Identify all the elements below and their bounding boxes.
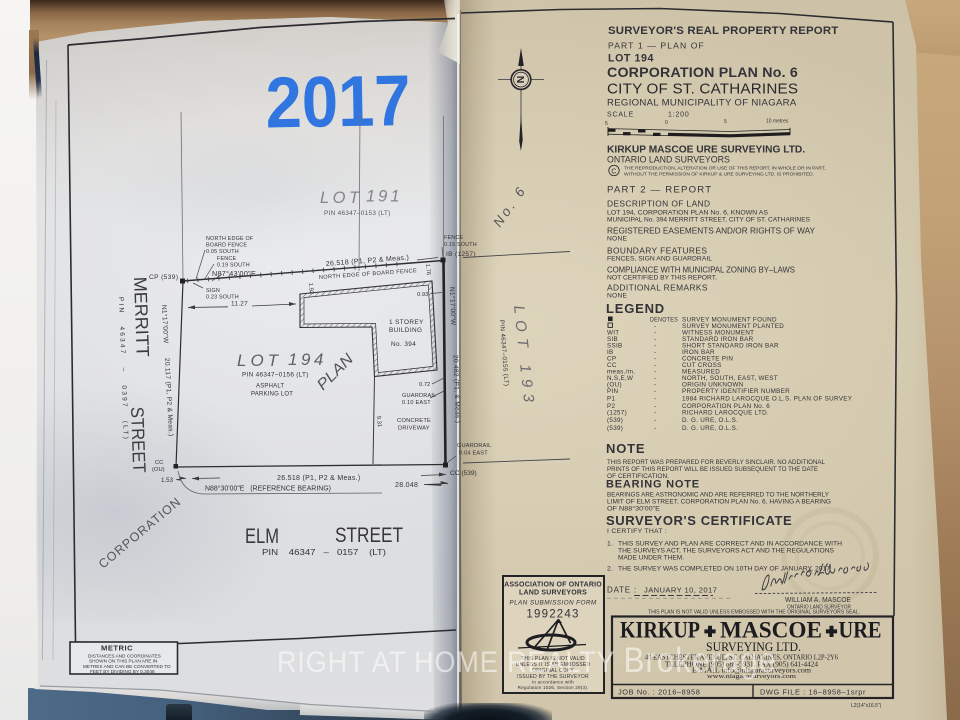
svg-text:SCALE: SCALE — [607, 112, 634, 119]
svg-text:20.482 (P1, & Meas.): 20.482 (P1, & Meas.) — [452, 355, 461, 424]
svg-text:REGISTERED EASEMENTS AND/OR RI: REGISTERED EASEMENTS AND/OR RIGHTS OF WA… — [607, 226, 815, 236]
svg-text:PRINTS OF THIS REPORT WILL BE: PRINTS OF THIS REPORT WILL BE ISSUED SUB… — [607, 466, 818, 473]
svg-text:PART 2 — REPORT: PART 2 — REPORT — [607, 185, 712, 196]
svg-text:WITHOUT THE PERMISSION OF: WITHOUT THE PERMISSION OF KIRKUP & URE S… — [624, 172, 814, 178]
svg-text:JOB No. : 2016–8958: JOB No. : 2016–8958 — [618, 688, 700, 697]
svg-text:N88°30'00"E (REFERENCE BEARI: N88°30'00"E (REFERENCE BEARING) — [205, 485, 331, 493]
svg-text:0.10 EAST: 0.10 EAST — [402, 400, 431, 406]
svg-text:CC (539): CC (539) — [450, 470, 477, 477]
svg-text:MADE UNDER THEM.: MADE UNDER THEM. — [618, 555, 684, 562]
svg-text:2017: 2017 — [265, 60, 411, 143]
svg-text:KIRKUP: KIRKUP — [620, 618, 700, 643]
svg-text:D. G. URE, O.L.S.: D. G. URE, O.L.S. — [682, 417, 738, 424]
svg-text:191: 191 — [366, 188, 403, 206]
svg-text:194: 194 — [288, 350, 327, 369]
svg-text:I CERTIFY THAT :: I CERTIFY THAT : — [607, 528, 667, 535]
svg-text:THIS PLAN IS NOT VALID UNLESS: THIS PLAN IS NOT VALID UNLESS EMBOSSED W… — [648, 610, 860, 616]
svg-text:LEGEND: LEGEND — [606, 301, 665, 316]
svg-text:SURVEYOR'S CERTIFICATE: SURVEYOR'S CERTIFICATE — [606, 513, 792, 528]
svg-text:LOT 193: LOT 193 — [510, 305, 537, 404]
svg-text:0.05 SOUTH: 0.05 SOUTH — [206, 249, 239, 255]
svg-text:BOUNDARY FEATURES: BOUNDARY FEATURES — [607, 246, 707, 256]
svg-text:28.048: 28.048 — [395, 482, 418, 489]
svg-text:(539): (539) — [607, 425, 623, 432]
svg-text:No. 6: No. 6 — [490, 182, 529, 229]
svg-text:PIN 46347–0156 (LT): PIN 46347–0156 (LT) — [242, 372, 309, 379]
svg-text:ELM: ELM — [245, 525, 279, 548]
svg-text:PIN 46347 – 0397 (LT): PIN 46347 – 0397 (LT) — [117, 297, 129, 439]
svg-text:0.72: 0.72 — [419, 382, 430, 388]
svg-text:PROPERTY IDENTIFIER NUMBER: PROPERTY IDENTIFIER NUMBER — [682, 388, 790, 395]
svg-text:THIS SURVEY AND PLAN ARE CORRE: THIS SURVEY AND PLAN ARE CORRECT AND IN … — [618, 541, 842, 548]
svg-text:0.19 SOUTH: 0.19 SOUTH — [217, 263, 250, 269]
svg-text:0.15 SOUTH: 0.15 SOUTH — [444, 242, 477, 248]
svg-text:COMPLIANCE WITH MUNICIPAL ZONI: COMPLIANCE WITH MUNICIPAL ZONING BY–LAWS — [607, 265, 795, 275]
svg-text:BOARD FENCE: BOARD FENCE — [206, 243, 247, 249]
svg-text:ASPHALT: ASPHALT — [256, 384, 284, 390]
svg-text:FENCE: FENCE — [217, 256, 236, 262]
svg-text:PLAN SUBMISSION FORM: PLAN SUBMISSION FORM — [509, 600, 596, 607]
svg-text:ADDITIONAL REMARKS: ADDITIONAL REMARKS — [607, 283, 708, 293]
svg-text:N1°17'00"W: N1°17'00"W — [448, 287, 457, 326]
svg-text:0.04 EAST: 0.04 EAST — [459, 451, 488, 457]
svg-text:1.53: 1.53 — [161, 477, 174, 484]
svg-text:MERRITT: MERRITT — [130, 276, 153, 357]
svg-text:SIGN: SIGN — [206, 288, 220, 294]
svg-text:N: N — [514, 76, 526, 84]
svg-text:OF N88°30'00"E: OF N88°30'00"E — [607, 505, 660, 513]
svg-text:URE: URE — [839, 618, 882, 643]
svg-text:THIS REPORT WAS PREPARED FOR B: THIS REPORT WAS PREPARED FOR BEVERLY SIN… — [607, 459, 825, 466]
svg-text:NOT CERTIFIED BY THIS REPORT.: NOT CERTIFIED BY THIS REPORT. — [607, 275, 717, 282]
svg-text:FEET BY DIVIDING BY 0.3048: FEET BY DIVIDING BY 0.3048 — [90, 669, 155, 674]
svg-text:10 metres: 10 metres — [766, 119, 789, 125]
svg-text:P1: P1 — [607, 396, 615, 403]
svg-text:1984 RICHARD LAROCQUE O.L.S: 1984 RICHARD LAROCQUE O.L.S. PLAN OF SUR… — [682, 396, 853, 403]
svg-text:C: C — [611, 168, 616, 175]
svg-text:11.27: 11.27 — [231, 301, 248, 308]
svg-text:REGIONAL MUNICIPALITY OF NI: REGIONAL MUNICIPALITY OF NIAGARA — [607, 98, 797, 109]
svg-text:BEARINGS ARE ASTRONOMIC AND AR: BEARINGS ARE ASTRONOMIC AND ARE REFERRED… — [607, 492, 829, 499]
svg-text:NONE: NONE — [607, 293, 628, 300]
svg-text:(OU): (OU) — [152, 467, 165, 473]
svg-text:20.117 (P1, P2 & Meas.): 20.117 (P1, P2 & Meas.) — [163, 358, 174, 437]
svg-text:THE SURVEYS ACT, THE SURVEYORS: THE SURVEYS ACT, THE SURVEYORS ACT AND T… — [618, 548, 834, 555]
svg-text:-: - — [654, 425, 656, 432]
svg-text:(539): (539) — [607, 417, 623, 424]
svg-text:BEARING NOTE: BEARING NOTE — [606, 479, 700, 491]
svg-text:CITY OF ST. CATHARINES: CITY OF ST. CATHARINES — [607, 81, 798, 98]
svg-text:DESCRIPTION OF LAND: DESCRIPTION OF LAND — [607, 199, 710, 209]
svg-text:PART 1 — PLAN OF: PART 1 — PLAN OF — [608, 41, 705, 51]
svg-text:N87°43'00"E: N87°43'00"E — [212, 269, 256, 278]
svg-text:PIN 46347–0155 (LT): PIN 46347–0155 (LT) — [498, 320, 510, 387]
svg-text:LOT 194: LOT 194 — [608, 53, 654, 65]
svg-text:1.92: 1.92 — [307, 283, 314, 295]
svg-text:DRIVEWAY: DRIVEWAY — [398, 426, 430, 432]
svg-text:0: 0 — [665, 120, 668, 126]
svg-text:ONTARIO LAND SURVEYORS: ONTARIO LAND SURVEYORS — [607, 155, 730, 165]
svg-text:CORPORATION PLAN No. 6: CORPORATION PLAN No. 6 — [607, 65, 798, 81]
svg-text:NORTH EDGE OF: NORTH EDGE OF — [206, 236, 254, 242]
svg-text:-: - — [654, 396, 656, 403]
svg-text:LIMIT OF ELM STREET, CORPORATI: LIMIT OF ELM STREET, CORPORATION PLAN No… — [607, 499, 831, 506]
svg-text:NORTH EDGE OF BOARD FENCE: NORTH EDGE OF BOARD FENCE — [319, 268, 418, 281]
svg-text:1:200: 1:200 — [668, 112, 690, 119]
svg-text:0.93: 0.93 — [417, 292, 428, 298]
svg-text:NOTE: NOTE — [606, 441, 645, 456]
svg-text:JANUARY 10, 2017: JANUARY 10, 2017 — [644, 586, 717, 595]
svg-text:1.: 1. — [607, 541, 613, 548]
svg-text:LOT: LOT — [320, 189, 363, 207]
svg-text:GUARDRAIL: GUARDRAIL — [457, 443, 491, 449]
svg-text:D. G. URE, O.L.S.: D. G. URE, O.L.S. — [682, 425, 738, 432]
svg-text:NONE: NONE — [607, 236, 628, 243]
svg-text:2.: 2. — [607, 566, 613, 573]
svg-text:CP (539): CP (539) — [149, 274, 178, 281]
svg-text:STREET: STREET — [127, 406, 149, 473]
svg-text:Regulation 1026, Section 29: Regulation 1026, Section 29(3). — [518, 685, 589, 690]
svg-text:MUNICIPAL No. 394 MERRITT STRE: MUNICIPAL No. 394 MERRITT STREET, CITY O… — [607, 217, 811, 224]
svg-text:(1257): (1257) — [607, 410, 627, 417]
svg-text:-: - — [654, 410, 656, 417]
svg-text:LAND SURVEYORS: LAND SURVEYORS — [519, 590, 587, 597]
svg-text:LOT 194, CORPORATION PLAN No.: LOT 194, CORPORATION PLAN No. 6, KNOWN A… — [607, 210, 769, 217]
svg-text:THE REPRODUCTION, ALTERATION: THE REPRODUCTION, ALTERATION OR USE OF T… — [624, 166, 826, 172]
svg-text:1 STOREY: 1 STOREY — [389, 319, 424, 326]
svg-text:9.31: 9.31 — [375, 416, 382, 428]
svg-text:26.518 (P1, P2 & Meas.): 26.518 (P1, P2 & Meas.) — [277, 475, 361, 482]
svg-text:CC: CC — [155, 460, 163, 466]
svg-text:1992243: 1992243 — [526, 609, 579, 621]
svg-text:CORPORATION: CORPORATION — [96, 495, 183, 571]
svg-text:FENCE: FENCE — [444, 235, 463, 241]
svg-text:FENCES, SIGN AND GUARDRAIL: FENCES, SIGN AND GUARDRAIL — [607, 256, 712, 263]
svg-text:METRIC: METRIC — [101, 644, 133, 653]
svg-text:PIN: PIN — [607, 388, 619, 395]
svg-text:DWG FILE : 16–8958–1srpr: DWG FILE : 16–8958–1srpr — [760, 688, 866, 697]
svg-text:PIN 46347 – 0157 (LT: PIN 46347 – 0157 (LT) — [262, 548, 386, 557]
svg-text:N1°17'00"W: N1°17'00"W — [160, 305, 170, 344]
svg-text:SURVEYOR'S REAL PROPERTY RE: SURVEYOR'S REAL PROPERTY REPORT — [608, 25, 838, 37]
svg-text:No. 394: No. 394 — [391, 341, 416, 348]
svg-text:1.76: 1.76 — [424, 264, 431, 276]
svg-text:-: - — [654, 388, 656, 395]
svg-text:CONCRETE: CONCRETE — [397, 418, 431, 424]
svg-text:LOT: LOT — [237, 351, 282, 370]
svg-text:STREET: STREET — [335, 524, 403, 547]
svg-text:BUILDING: BUILDING — [389, 327, 422, 334]
svg-text:PIN 46347–0153 (LT): PIN 46347–0153 (LT) — [324, 210, 391, 217]
svg-text:DATE :: DATE : — [607, 586, 637, 595]
svg-text:PARKING LOT: PARKING LOT — [251, 392, 293, 398]
svg-text:5: 5 — [724, 119, 727, 125]
svg-text:-: - — [654, 417, 656, 424]
svg-text:L2(14"x16.5"): L2(14"x16.5") — [851, 703, 882, 709]
svg-text:ASSOCIATION OF ONTARIO: ASSOCIATION OF ONTARIO — [504, 582, 602, 589]
svg-text:RICHARD LAROCQUE LTD.: RICHARD LAROCQUE LTD. — [682, 410, 769, 417]
svg-text:GUARDRAIL: GUARDRAIL — [402, 393, 436, 399]
svg-text:5: 5 — [605, 121, 608, 127]
